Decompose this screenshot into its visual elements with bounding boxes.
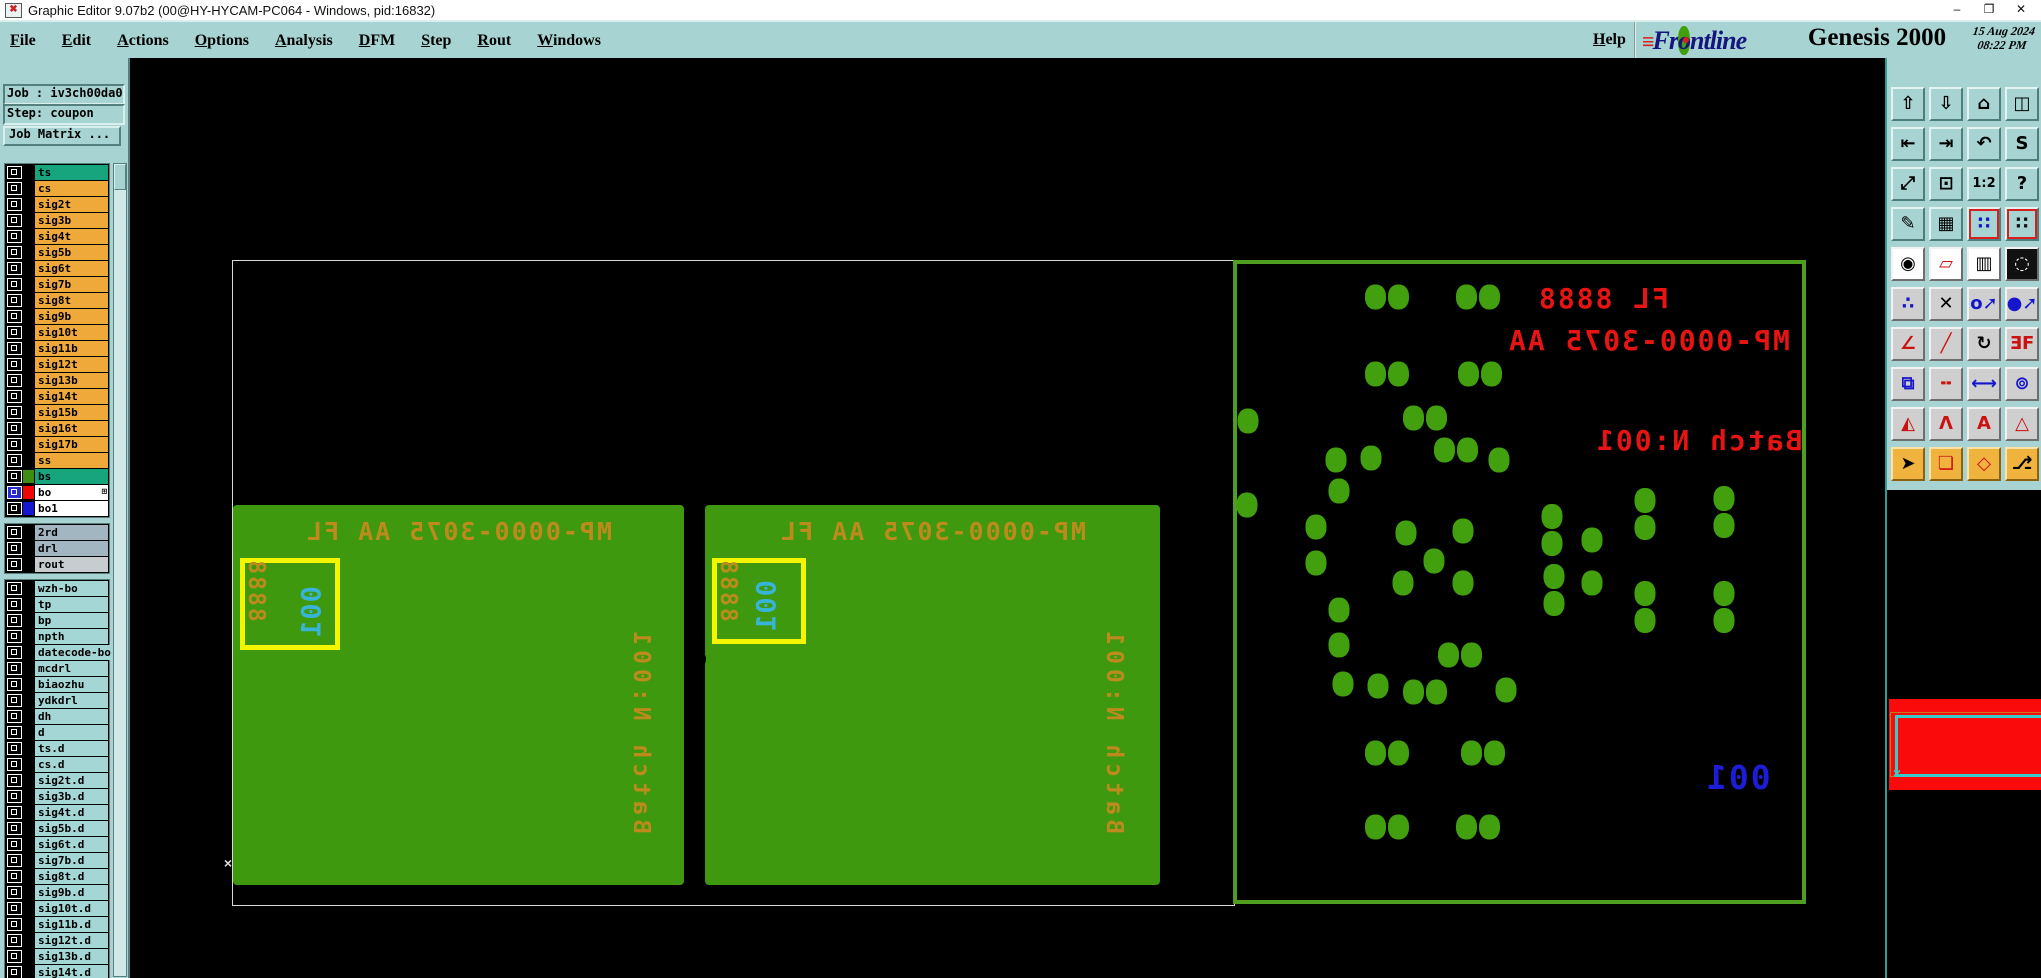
layer-color-chip-wzh-bo[interactable] [23, 582, 34, 595]
layer-row-ss[interactable]: ss [6, 453, 108, 468]
layer-checkbox-biaozhu[interactable] [7, 678, 22, 691]
layer-checkbox-sig11b.d[interactable] [7, 918, 22, 931]
layer-row-sig10t.d[interactable]: sig10t.d [6, 901, 108, 916]
layer-checkbox-sig8t[interactable] [7, 294, 22, 307]
layer-checkbox-ss[interactable] [7, 454, 22, 467]
layer-row-sig12t[interactable]: sig12t [6, 357, 108, 372]
layer-name-bo1[interactable]: bo1 [35, 501, 108, 516]
layer-name-sig12t[interactable]: sig12t [35, 357, 108, 372]
layer-name-bs[interactable]: bs [35, 469, 108, 484]
layer-checkbox-mcdrl[interactable] [7, 662, 22, 675]
layer-checkbox-sig11b[interactable] [7, 342, 22, 355]
layer-row-cs[interactable]: cs [6, 181, 108, 196]
layer-checkbox-sig7b[interactable] [7, 278, 22, 291]
layer-checkbox-sig5b.d[interactable] [7, 822, 22, 835]
layer-checkbox-wzh-bo[interactable] [7, 582, 22, 595]
layer-name-wzh-bo[interactable]: wzh-bo [35, 581, 108, 596]
layer-checkbox-sig2t[interactable] [7, 198, 22, 211]
layer-checkbox-sig8t.d[interactable] [7, 870, 22, 883]
menu-analysis[interactable]: Analysis [275, 32, 333, 50]
layer-name-cs[interactable]: cs [35, 181, 108, 196]
layer-color-chip-sig15b[interactable] [23, 406, 34, 419]
layer-name-datecode-bo[interactable]: datecode-bo [35, 645, 111, 660]
copy-circle-icon-glyph: o➚ [1970, 293, 1997, 314]
layer-row-bo[interactable]: bo⊞ [6, 485, 108, 500]
menu-rout[interactable]: Rout [477, 32, 511, 50]
layer-row-tp[interactable]: tp [6, 597, 108, 612]
layer-name-sig2t.d[interactable]: sig2t.d [35, 773, 108, 788]
layer-row-sig5b.d[interactable]: sig5b.d [6, 821, 108, 836]
layer-color-chip-bo1[interactable] [23, 502, 34, 515]
layer-row-ts.d[interactable]: ts.d [6, 741, 108, 756]
application-window: ✖ Graphic Editor 9.07b2 (00@HY-HYCAM-PC0… [0, 0, 2041, 978]
layer-color-chip-bs[interactable] [23, 470, 34, 483]
layer-color-chip-drl[interactable] [23, 542, 34, 555]
layer-color-chip-sig12t.d[interactable] [23, 934, 34, 947]
layer-color-chip-sig4t.d[interactable] [23, 806, 34, 819]
layer-checkbox-sig4t[interactable] [7, 230, 22, 243]
board2-batch-number: Batch N:001 [1101, 626, 1127, 833]
menu-options[interactable]: Options [195, 32, 249, 50]
menu-dfm[interactable]: DFM [359, 32, 395, 50]
layer-checkbox-rout[interactable] [7, 558, 22, 571]
close-button[interactable]: ✕ [2005, 0, 2037, 20]
layer-row-sig4t[interactable]: sig4t [6, 229, 108, 244]
layer-name-sig17b[interactable]: sig17b [35, 437, 108, 452]
layer-color-chip-ss[interactable] [23, 454, 34, 467]
layer-checkbox-tp[interactable] [7, 598, 22, 611]
angle-icon[interactable]: ∠ [1891, 327, 1925, 361]
layer-color-chip-sig11b.d[interactable] [23, 918, 34, 931]
layer-row-sig10t[interactable]: sig10t [6, 325, 108, 340]
time-text: 08:22 PM [1977, 38, 2028, 52]
layer-color-chip-sig6t[interactable] [23, 262, 34, 275]
layer-name-sig6t.d[interactable]: sig6t.d [35, 837, 108, 852]
layer-name-sig5b[interactable]: sig5b [35, 245, 108, 260]
layer-color-chip-sig12t[interactable] [23, 358, 34, 371]
layer-color-chip-sig3b.d[interactable] [23, 790, 34, 803]
layer-checkbox-sig15b[interactable] [7, 406, 22, 419]
copy-circle-icon[interactable]: o➚ [1967, 287, 2001, 321]
layer-row-bo1[interactable]: bo1 [6, 501, 108, 516]
layer-color-chip-sig9b.d[interactable] [23, 886, 34, 899]
layer-row-sig3b.d[interactable]: sig3b.d [6, 789, 108, 804]
drill-dot [1456, 285, 1477, 310]
layer-row-sig11b[interactable]: sig11b [6, 341, 108, 356]
layer-checkbox-ts[interactable] [7, 166, 22, 179]
layer-name-sig15b[interactable]: sig15b [35, 405, 108, 420]
layer-checkbox-drl[interactable] [7, 542, 22, 555]
layer-checkbox-d[interactable] [7, 726, 22, 739]
layer-name-tp[interactable]: tp [35, 597, 108, 612]
drill-dot [1388, 285, 1409, 310]
layer-checkbox-sig12t.d[interactable] [7, 934, 22, 947]
serpentine-icon[interactable]: S [2005, 127, 2039, 161]
layer-row-datecode-bo[interactable]: datecode-bo [6, 645, 108, 660]
layer-color-chip-sig17b[interactable] [23, 438, 34, 451]
layer-row-sig3b[interactable]: sig3b [6, 213, 108, 228]
undo-icon[interactable]: ↶ [1967, 127, 2001, 161]
layer-name-ss[interactable]: ss [35, 453, 108, 468]
active-symbol-icon[interactable]: ◉ [1891, 247, 1925, 281]
select-net-icon[interactable]: ⎇ [2005, 447, 2039, 481]
toolbar-icon-grid: ⇧⇩⌂◫⇤⇥↶S⤢⊡1:2?✎▦∷∷◉▱▥◌∴✕o➚●➚∠╱↻ƎF⧉╍⟷⊚◭ΛA… [1889, 85, 2041, 485]
layer-row-d[interactable]: d [6, 725, 108, 740]
layer-color-chip-datecode-bo[interactable] [23, 646, 34, 659]
layer-name-bp[interactable]: bp [35, 613, 108, 628]
layer-color-chip-sig7b[interactable] [23, 278, 34, 291]
layer-checkbox-sig3b[interactable] [7, 214, 22, 227]
layer-checkbox-sig5b[interactable] [7, 246, 22, 259]
layer-name-d[interactable]: d [35, 725, 108, 740]
menu-actions[interactable]: Actions [117, 32, 169, 50]
layer-name-sig9b.d[interactable]: sig9b.d [35, 885, 108, 900]
layer-row-drl[interactable]: drl [6, 541, 108, 556]
pad-dashed-icon[interactable]: ◌ [2005, 247, 2039, 281]
scrollbar-thumb[interactable] [114, 164, 126, 190]
layer-color-chip-sig14t[interactable] [23, 390, 34, 403]
layer-row-sig8t.d[interactable]: sig8t.d [6, 869, 108, 884]
layer-name-mcdrl[interactable]: mcdrl [35, 661, 108, 676]
help-icon[interactable]: ? [2005, 167, 2039, 201]
drill-dot [1403, 680, 1424, 705]
layer-name-sig14t[interactable]: sig14t [35, 389, 108, 404]
layer-name-sig13b.d[interactable]: sig13b.d [35, 949, 108, 964]
swap-symbols-icon[interactable]: ⊚ [2005, 367, 2039, 401]
layer-color-chip-sig8t.d[interactable] [23, 870, 34, 883]
layer-name-sig16t[interactable]: sig16t [35, 421, 108, 436]
select-single-icon[interactable]: ➤ [1891, 447, 1925, 481]
drill-dot [1329, 598, 1350, 623]
menu-list: FileEditActionsOptionsAnalysisDFMStepRou… [10, 22, 601, 60]
peak-a-icon[interactable]: ◭ [1891, 407, 1925, 441]
layer-row-sig7b[interactable]: sig7b [6, 277, 108, 292]
select-polygon-icon[interactable]: ◇ [1967, 447, 2001, 481]
layer-row-sig4t.d[interactable]: sig4t.d [6, 805, 108, 820]
measure-box-icon[interactable]: ⟷ [1967, 367, 2001, 401]
layer-color-chip-ts.d[interactable] [23, 742, 34, 755]
layer-name-sig10t[interactable]: sig10t [35, 325, 108, 340]
layer-name-sig3b[interactable]: sig3b [35, 213, 108, 228]
layer-checkbox-sig6t.d[interactable] [7, 838, 22, 851]
layer-name-ydkdrl[interactable]: ydkdrl [35, 693, 108, 708]
layer-checkbox-bp[interactable] [7, 614, 22, 627]
layer-checkbox-datecode-bo[interactable] [7, 646, 22, 659]
job-matrix-button[interactable]: Job Matrix ... [3, 126, 121, 146]
layer-color-chip-sig2t.d[interactable] [23, 774, 34, 787]
layer-row-sig16t[interactable]: sig16t [6, 421, 108, 436]
layer-checkbox-ydkdrl[interactable] [7, 694, 22, 707]
layer-row-bp[interactable]: bp [6, 613, 108, 628]
layer-color-chip-sig9b[interactable] [23, 310, 34, 323]
layer-name-cs.d[interactable]: cs.d [35, 757, 108, 772]
net-points-icon[interactable]: ∴ [1891, 287, 1925, 321]
layer-list-scrollbar[interactable] [113, 163, 127, 977]
layer-name-sig5b.d[interactable]: sig5b.d [35, 821, 108, 836]
grid-icon[interactable]: ▦ [1929, 207, 1963, 241]
select-frame-icon[interactable]: ❏ [1929, 447, 1963, 481]
layer-color-chip-sig2t[interactable] [23, 198, 34, 211]
layer-color-chip-d[interactable] [23, 726, 34, 739]
shift-left-icon[interactable]: ⇤ [1891, 127, 1925, 161]
layer-name-sig10t.d[interactable]: sig10t.d [35, 901, 108, 916]
layer-name-sig11b.d[interactable]: sig11b.d [35, 917, 108, 932]
layer-color-chip-sig13b.d[interactable] [23, 950, 34, 963]
slope-line-icon-glyph: ╱ [1941, 333, 1952, 354]
drill-dot-group [1396, 521, 1417, 546]
layer-name-sig11b[interactable]: sig11b [35, 341, 108, 356]
layer-color-chip-rout[interactable] [23, 558, 34, 571]
layer-checkbox-sig12t[interactable] [7, 358, 22, 371]
layer-color-chip-cs[interactable] [23, 182, 34, 195]
drill-dot [1635, 515, 1656, 540]
layer-name-drl[interactable]: drl [35, 541, 108, 556]
drill-dot [1544, 564, 1565, 589]
layer-color-chip-sig8t[interactable] [23, 294, 34, 307]
layer-name-sig9b[interactable]: sig9b [35, 309, 108, 324]
layer-color-chip-npth[interactable] [23, 630, 34, 643]
netlist-b-icon-glyph: ∷ [2016, 213, 2029, 234]
layer-row-sig14t[interactable]: sig14t [6, 389, 108, 404]
layer-name-rout[interactable]: rout [35, 557, 108, 572]
transform-symbol-icon[interactable]: ▱ [1929, 247, 1963, 281]
layer-checkbox-sig10t[interactable] [7, 326, 22, 339]
layer-row-sig8t[interactable]: sig8t [6, 293, 108, 308]
layer-checkbox-npth[interactable] [7, 630, 22, 643]
layer-color-chip-2rd[interactable] [23, 526, 34, 539]
board1-code-8888: 8888 [243, 558, 269, 621]
netlist-a-icon[interactable]: ∷ [1967, 207, 2001, 241]
measure-ruler-icon[interactable]: ▥ [1967, 247, 2001, 281]
layer-row-sig5b[interactable]: sig5b [6, 245, 108, 260]
layer-checkbox-sig17b[interactable] [7, 438, 22, 451]
select-single-icon-glyph: ➤ [1900, 453, 1915, 474]
layer-checkbox-bo[interactable] [7, 486, 22, 499]
menu-windows[interactable]: Windows [537, 32, 601, 50]
layer-color-chip-sig4t[interactable] [23, 230, 34, 243]
coupon-board-2[interactable]: MP-0000-3075 AA FL 001 8888 Batch N:001 [705, 505, 1160, 885]
layer-section-1: tscssig2tsig3bsig4tsig5bsig6tsig7bsig8ts… [4, 163, 110, 518]
layer-checkbox-sig3b.d[interactable] [7, 790, 22, 803]
layer-name-bo[interactable]: bo⊞ [35, 485, 108, 500]
layer-checkbox-sig6t[interactable] [7, 262, 22, 275]
layer-name-sig4t[interactable]: sig4t [35, 229, 108, 244]
layer-row-mcdrl[interactable]: mcdrl [6, 661, 108, 676]
layer-color-chip-ydkdrl[interactable] [23, 694, 34, 707]
minimize-button[interactable]: – [1941, 0, 1973, 20]
layer-row-sig2t[interactable]: sig2t [6, 197, 108, 212]
drill-dot [1329, 479, 1350, 504]
layer-checkbox-sig4t.d[interactable] [7, 806, 22, 819]
cyan-selection-rect [1895, 715, 2041, 777]
move-circle-icon[interactable]: ●➚ [2005, 287, 2039, 321]
menu-edit[interactable]: Edit [62, 32, 91, 50]
drill-dot [1396, 521, 1417, 546]
layer-color-chip-sig7b.d[interactable] [23, 854, 34, 867]
drill-dot-group [1333, 672, 1354, 697]
drill-dot [1458, 362, 1479, 387]
layer-name-sig13b[interactable]: sig13b [35, 373, 108, 388]
layer-row-sig17b[interactable]: sig17b [6, 437, 108, 452]
layer-checkbox-sig14t[interactable] [7, 390, 22, 403]
layer-name-sig14t.d[interactable]: sig14t.d [35, 965, 108, 978]
layer-row-sig2t.d[interactable]: sig2t.d [6, 773, 108, 788]
layer-checkbox-cs[interactable] [7, 182, 22, 195]
layer-row-sig13b[interactable]: sig13b [6, 373, 108, 388]
layer-name-sig2t[interactable]: sig2t [35, 197, 108, 212]
select-frame-icon-glyph: ❏ [1938, 453, 1954, 474]
layer-color-chip-sig14t.d[interactable] [23, 966, 34, 978]
layer-checkbox-sig14t.d[interactable] [7, 966, 22, 978]
layer-color-chip-sig6t.d[interactable] [23, 838, 34, 851]
layer-checkbox-ts.d[interactable] [7, 742, 22, 755]
layer-color-chip-sig5b[interactable] [23, 246, 34, 259]
layer-row-sig6t[interactable]: sig6t [6, 261, 108, 276]
netlist-b-icon[interactable]: ∷ [2005, 207, 2039, 241]
mirror-icon[interactable]: ƎF [2005, 327, 2039, 361]
layer-row-sig7b.d[interactable]: sig7b.d [6, 853, 108, 868]
zoom-center-icon[interactable]: ⊡ [1929, 167, 1963, 201]
layer-name-ts.d[interactable]: ts.d [35, 741, 108, 756]
layer-name-ts[interactable]: ts [35, 165, 108, 180]
layer-name-npth[interactable]: npth [35, 629, 108, 644]
paste-up-icon[interactable]: ⇧ [1891, 87, 1925, 121]
layer-row-npth[interactable]: npth [6, 629, 108, 644]
rotate-icon[interactable]: ↻ [1967, 327, 2001, 361]
drill-dot-group [1365, 362, 1409, 387]
layer-color-chip-sig11b[interactable] [23, 342, 34, 355]
layer-color-chip-sig10t[interactable] [23, 326, 34, 339]
peak-b-icon[interactable]: Λ [1929, 407, 1963, 441]
layer-color-chip-ts[interactable] [23, 166, 34, 179]
layer-name-sig6t[interactable]: sig6t [35, 261, 108, 276]
layer-name-sig7b[interactable]: sig7b [35, 277, 108, 292]
layer-color-chip-sig10t.d[interactable] [23, 902, 34, 915]
layer-checkbox-sig2t.d[interactable] [7, 774, 22, 787]
layer-name-biaozhu[interactable]: biaozhu [35, 677, 108, 692]
layer-row-cs.d[interactable]: cs.d [6, 757, 108, 772]
layer-row-sig9b.d[interactable]: sig9b.d [6, 885, 108, 900]
select-net-icon-glyph: ⎇ [2012, 453, 2033, 474]
layer-checkbox-sig7b.d[interactable] [7, 854, 22, 867]
layer-checkbox-cs.d[interactable] [7, 758, 22, 771]
drill-dot [1484, 741, 1505, 766]
layer-row-dh[interactable]: dh [6, 709, 108, 724]
layer-color-chip-tp[interactable] [23, 598, 34, 611]
layer-name-sig7b.d[interactable]: sig7b.d [35, 853, 108, 868]
layer-row-sig11b.d[interactable]: sig11b.d [6, 917, 108, 932]
layer-checkbox-sig9b[interactable] [7, 310, 22, 323]
graphic-setup-icon[interactable]: ✎ [1891, 207, 1925, 241]
layer-row-2rd[interactable]: 2rd [6, 525, 108, 540]
layer-checkbox-sig16t[interactable] [7, 422, 22, 435]
layer-name-sig12t.d[interactable]: sig12t.d [35, 933, 108, 948]
home-view-icon[interactable]: ⌂ [1967, 87, 2001, 121]
layer-name-sig8t.d[interactable]: sig8t.d [35, 869, 108, 884]
layer-row-sig12t.d[interactable]: sig12t.d [6, 933, 108, 948]
drill-panel[interactable]: FL 8888 MP-0000-3075 AA Batch N:001 001 [1233, 260, 1806, 904]
menu-file[interactable]: File [10, 32, 36, 50]
paste-down-icon[interactable]: ⇩ [1929, 87, 1963, 121]
menu-help[interactable]: Help [1593, 31, 1626, 49]
layer-color-chip-sig5b.d[interactable] [23, 822, 34, 835]
layer-list: tscssig2tsig3bsig4tsig5bsig6tsig7bsig8ts… [4, 163, 110, 978]
layer-name-sig4t.d[interactable]: sig4t.d [35, 805, 108, 820]
graphic-setup-icon-glyph: ✎ [1900, 213, 1915, 234]
layer-row-sig13b.d[interactable]: sig13b.d [6, 949, 108, 964]
layer-row-ydkdrl[interactable]: ydkdrl [6, 693, 108, 708]
coupon-board-1[interactable]: MP-0000-3075 AA FL 001 8888 Batch N:001 [233, 505, 684, 885]
layer-row-ts[interactable]: ts [6, 165, 108, 180]
layer-name-2rd[interactable]: 2rd [35, 525, 108, 540]
drill-dot [1456, 815, 1477, 840]
layer-row-sig14t.d[interactable]: sig14t.d [6, 965, 108, 978]
angle-icon-glyph: ∠ [1900, 333, 1916, 354]
layer-name-sig3b.d[interactable]: sig3b.d [35, 789, 108, 804]
layer-checkbox-sig13b[interactable] [7, 374, 22, 387]
layer-color-chip-sig3b[interactable] [23, 214, 34, 227]
layer-color-chip-sig16t[interactable] [23, 422, 34, 435]
layer-color-chip-dh[interactable] [23, 710, 34, 723]
layer-checkbox-bs[interactable] [7, 470, 22, 483]
layer-checkbox-sig10t.d[interactable] [7, 902, 22, 915]
stretch-line-icon[interactable]: ╍ [1929, 367, 1963, 401]
drill-dot-group [1403, 406, 1447, 431]
measure-box-icon-glyph: ⟷ [1971, 373, 1997, 394]
graphic-canvas[interactable]: MP-0000-3075 AA FL 001 8888 Batch N:001 … [130, 58, 1885, 978]
shift-right-icon[interactable]: ⇥ [1929, 127, 1963, 161]
layer-color-chip-bp[interactable] [23, 614, 34, 627]
delete-icon[interactable]: ✕ [1929, 287, 1963, 321]
peak-d-icon[interactable]: △ [2005, 407, 2039, 441]
layer-name-sig8t[interactable]: sig8t [35, 293, 108, 308]
drill-dot [1453, 519, 1474, 544]
layer-row-sig6t.d[interactable]: sig6t.d [6, 837, 108, 852]
slope-line-icon[interactable]: ╱ [1929, 327, 1963, 361]
layer-color-chip-sig13b[interactable] [23, 374, 34, 387]
layer-row-bs[interactable]: bs [6, 469, 108, 484]
layer-row-rout[interactable]: rout [6, 557, 108, 572]
layer-row-sig15b[interactable]: sig15b [6, 405, 108, 420]
layer-row-biaozhu[interactable]: biaozhu [6, 677, 108, 692]
drill-dot [1496, 678, 1517, 703]
layer-row-wzh-bo[interactable]: wzh-bo [6, 581, 108, 596]
drill-dot-group [1461, 741, 1505, 766]
copy-pad-icon[interactable]: ⧉ [1891, 367, 1925, 401]
layer-checkbox-sig13b.d[interactable] [7, 950, 22, 963]
menu-step[interactable]: Step [421, 32, 451, 50]
layer-color-chip-biaozhu[interactable] [23, 678, 34, 691]
layer-color-chip-cs.d[interactable] [23, 758, 34, 771]
split-window-xy-icon[interactable]: ◫ [2005, 87, 2039, 121]
panel-text-part-number: MP-0000-3075 AA [1507, 324, 1790, 357]
layer-row-sig9b[interactable]: sig9b [6, 309, 108, 324]
layer-name-dh[interactable]: dh [35, 709, 108, 724]
layer-color-chip-mcdrl[interactable] [23, 662, 34, 675]
layer-color-chip-bo[interactable] [23, 486, 34, 499]
layer-checkbox-dh[interactable] [7, 710, 22, 723]
layer-checkbox-2rd[interactable] [7, 526, 22, 539]
net-points-icon-glyph: ∴ [1902, 293, 1915, 314]
zoom-1-2-icon[interactable]: 1:2 [1967, 167, 2001, 201]
peak-c-icon[interactable]: A [1967, 407, 2001, 441]
maximize-button[interactable]: ❐ [1973, 0, 2005, 20]
date-text: 15 Aug 2024 [1972, 24, 2036, 38]
layer-checkbox-sig9b.d[interactable] [7, 886, 22, 899]
drill-dot [1434, 438, 1455, 463]
layer-checkbox-bo1[interactable] [7, 502, 22, 515]
zoom-out-icon[interactable]: ⤢ [1891, 167, 1925, 201]
